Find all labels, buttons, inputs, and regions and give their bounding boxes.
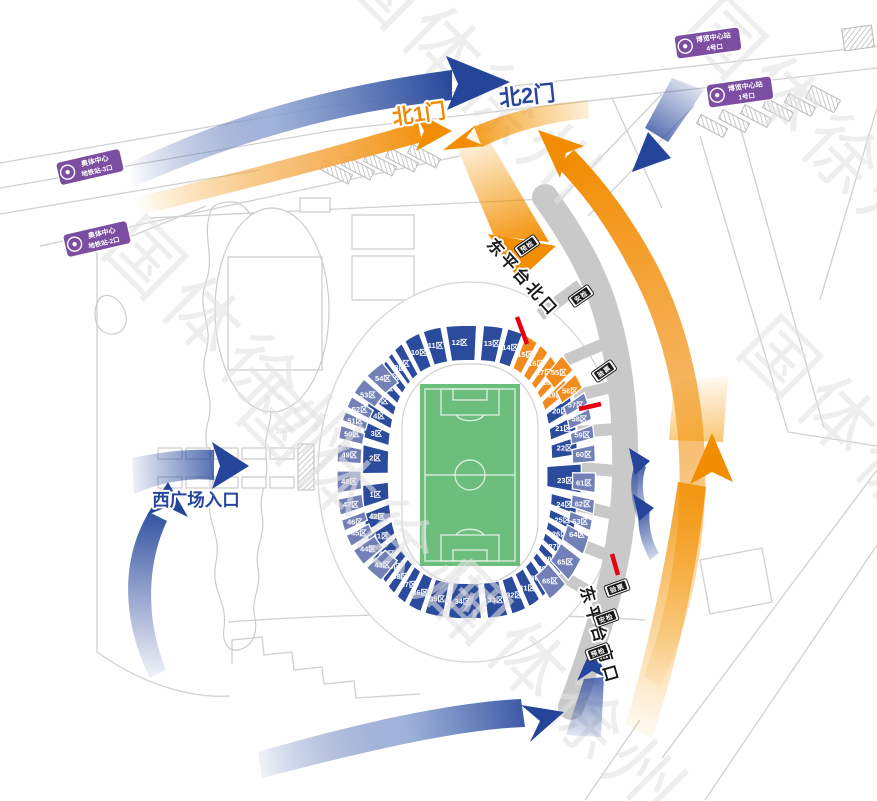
stadium-map: 9区10区11区12区13区14区15区16区17区18区19区20区21区22…: [0, 0, 877, 801]
stadium-section-label: 16区: [528, 359, 544, 368]
stadium-section-label: 56区: [562, 386, 578, 395]
stadium-section-label: 4区: [373, 412, 385, 421]
stadium-section-label: 64区: [569, 530, 585, 539]
stadium-section-label: 22区: [557, 444, 573, 453]
stadium-section-label: 65区: [557, 557, 573, 566]
stadium-section-label: 61区: [576, 479, 592, 488]
stadium-section-label: 12区: [452, 338, 468, 347]
stadium-section-label: 15区: [517, 350, 533, 359]
stadium-section-label: 23区: [557, 476, 573, 485]
stadium-section-label: 24区: [556, 500, 572, 509]
orange-fade-band: [669, 376, 728, 442]
gate-label-west-plaza: 西广场入口: [152, 490, 240, 510]
stadium-section-label: 14区: [502, 343, 518, 352]
stadium-section-label: 11区: [428, 341, 444, 350]
stadium-section-label: 59区: [574, 430, 590, 439]
stadium-section-label: 55区: [551, 368, 567, 377]
stadium-section-label: 62区: [575, 499, 591, 508]
stadium-section-label: 54区: [375, 374, 391, 383]
stadium-section-label: 13区: [484, 339, 500, 348]
stadium-section-label: 66区: [542, 577, 558, 586]
map-canvas: 9区10区11区12区13区14区15区16区17区18区19区20区21区22…: [0, 0, 877, 801]
stadium-section-label: 60区: [576, 450, 592, 459]
stadium-section-label: 63区: [572, 517, 588, 526]
stadium-section-label: 53区: [360, 390, 376, 399]
stadium-section-label: 58区: [572, 415, 588, 424]
stadium-section-label: 10区: [411, 348, 427, 357]
stadium-section-label: 8区: [394, 363, 406, 372]
